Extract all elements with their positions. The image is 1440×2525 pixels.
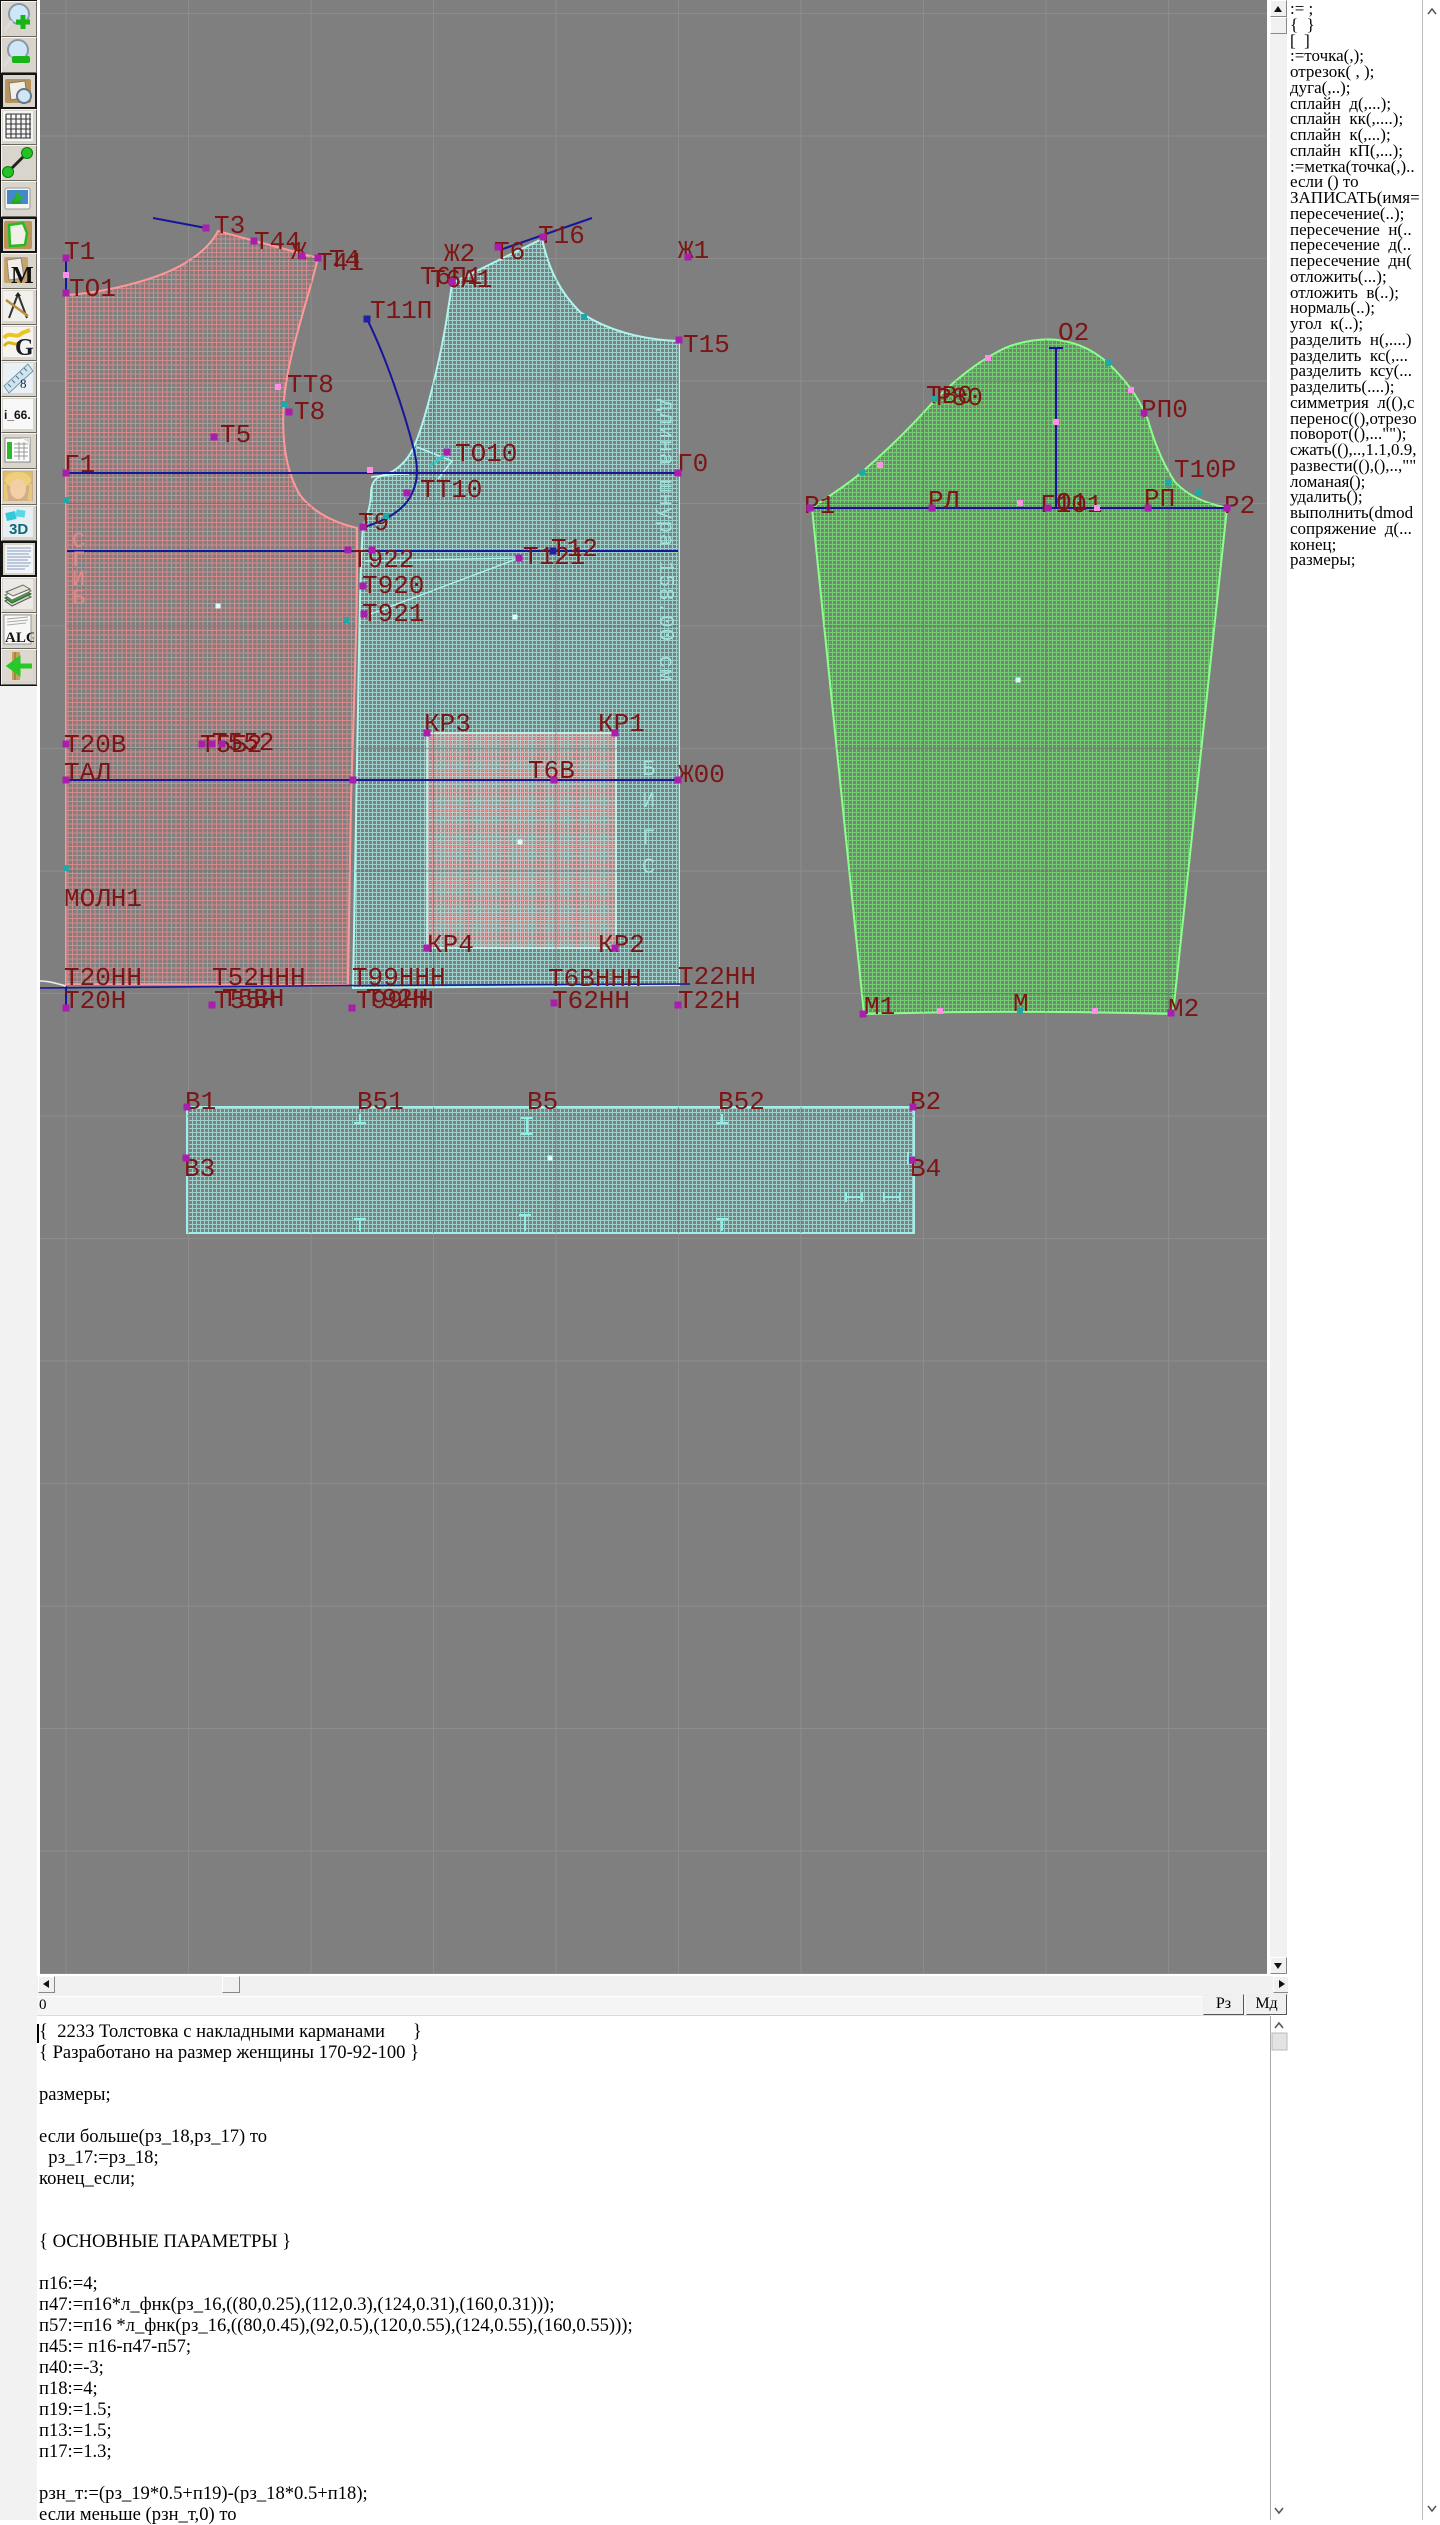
svg-text:ТО10: ТО10 (455, 439, 517, 469)
svg-text:Т6: Т6 (494, 237, 525, 267)
svg-text:О2: О2 (1058, 318, 1089, 348)
svg-text:Б: Б (72, 586, 85, 611)
svg-text:Т12: Т12 (551, 534, 598, 564)
svg-text:Т9: Т9 (358, 508, 389, 538)
svg-text:Р80: Р80 (936, 383, 983, 413)
svg-text:МОЛН1: МОЛН1 (64, 884, 142, 914)
svg-text:С: С (642, 855, 655, 880)
svg-text:ТАЛ: ТАЛ (64, 758, 111, 788)
svg-text:ТО1: ТО1 (69, 274, 116, 304)
svg-text:G: G (15, 335, 34, 358)
svg-text:Г0: Г0 (677, 449, 708, 479)
svg-text:РП0: РП0 (1141, 395, 1188, 425)
svg-text:КР1: КР1 (598, 709, 645, 739)
svg-text:Т20Н: Т20Н (64, 986, 126, 1016)
svg-text:длина шнура 158.00 см: длина шнура 158.00 см (653, 399, 676, 683)
svg-text:Т6А1: Т6А1 (430, 265, 492, 295)
svg-text:Т4: Т4 (329, 245, 360, 275)
svg-text:М1: М1 (864, 992, 895, 1022)
svg-text:Б: Б (642, 757, 655, 782)
svg-text:ТТ10: ТТ10 (420, 475, 482, 505)
svg-text:ALG: ALG (5, 630, 34, 646)
svg-text:Т20В: Т20В (64, 730, 126, 760)
svg-text:Т920: Т920 (362, 571, 424, 601)
svg-text:В2: В2 (910, 1087, 941, 1117)
svg-text:Т921: Т921 (362, 599, 424, 629)
svg-text:О1: О1 (1056, 488, 1087, 518)
svg-text:Г: Г (642, 826, 655, 851)
svg-text:КР3: КР3 (424, 709, 471, 739)
svg-text:В5: В5 (527, 1087, 558, 1117)
svg-text:Т62НН: Т62НН (552, 986, 630, 1016)
svg-text:i_66.: i_66. (4, 408, 31, 422)
svg-text:Т5ВН: Т5ВН (222, 984, 284, 1014)
svg-text:Т22Н: Т22Н (678, 986, 740, 1016)
svg-text:КР4: КР4 (427, 930, 474, 960)
svg-text:Ж: Ж (291, 237, 307, 267)
svg-text:Т92Н: Т92Н (366, 984, 428, 1014)
svg-text:Т3: Т3 (214, 211, 245, 241)
svg-text:Т10Р: Т10Р (1174, 455, 1236, 485)
svg-text:8: 8 (20, 376, 27, 391)
svg-text:И: И (642, 789, 655, 814)
svg-text:Ж00: Ж00 (678, 760, 725, 790)
svg-text:В52: В52 (718, 1087, 765, 1117)
svg-text:Ж1: Ж1 (678, 236, 709, 266)
svg-text:В1: В1 (185, 1087, 216, 1117)
svg-text:M: M (11, 263, 34, 286)
svg-text:Т5: Т5 (220, 420, 251, 450)
svg-text:Т11П: Т11П (370, 296, 432, 326)
svg-text:Т15: Т15 (683, 330, 730, 360)
svg-text:Т1: Т1 (64, 237, 95, 267)
svg-text:ТТ8: ТТ8 (287, 370, 334, 400)
svg-text:КР2: КР2 (598, 930, 645, 960)
svg-text:М2: М2 (1168, 994, 1199, 1024)
svg-text:Т8: Т8 (294, 397, 325, 427)
svg-text:3D: 3D (9, 521, 28, 538)
svg-text:М: М (1013, 989, 1029, 1019)
svg-text:В51: В51 (357, 1087, 404, 1117)
